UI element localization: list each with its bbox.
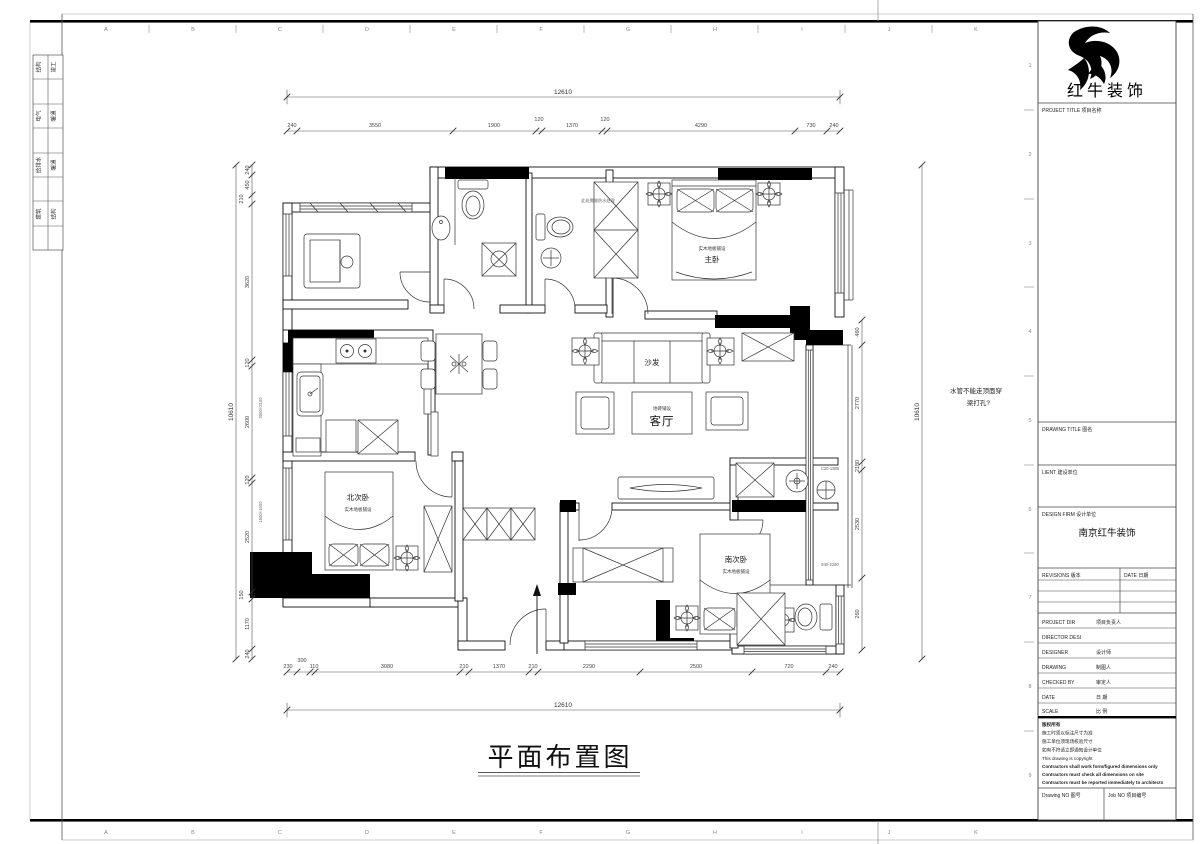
wardrobe — [424, 506, 452, 572]
dim: 3550 — [369, 123, 381, 129]
side-table — [576, 392, 614, 434]
grid-letter: B — [191, 830, 195, 836]
dim: 720 — [784, 664, 793, 670]
title-block: 红牛装饰 PROJECT TITLE 项目名称 DRAWING TITLE 图名… — [1038, 21, 1176, 820]
study-cabinet — [304, 234, 360, 288]
tb-row-en: CHECKED BY — [1042, 680, 1075, 686]
wardrobe — [573, 548, 673, 582]
window — [806, 350, 813, 580]
dim: 210 — [528, 664, 537, 670]
dim: 120 — [245, 475, 251, 484]
client-label: LIENT 建设单位 — [1042, 469, 1077, 476]
bed — [672, 180, 756, 280]
window — [300, 203, 412, 212]
tb-row-en: DESIGNER — [1042, 650, 1069, 656]
window — [836, 596, 844, 644]
cad-canvas: A B C D E F G H I J K A B C D E F G H I … — [0, 0, 1200, 844]
kitchen-sink — [297, 372, 323, 416]
door-bath2 — [545, 279, 575, 309]
grid-letter: D — [365, 27, 369, 33]
dim: 120 — [245, 358, 251, 367]
dim: 210 — [459, 664, 468, 670]
tb-row-en: DATE — [1042, 695, 1056, 701]
project-title-label: PROJECT TITLE 项目名称 — [1042, 107, 1102, 114]
design-firm-label: DESIGN FIRM 设计单位 — [1042, 511, 1096, 518]
job-no-label: Job NO 项目编号 — [1108, 792, 1146, 799]
tb-row-en: SCALE — [1042, 709, 1059, 715]
pipe-note-line1: 水管不能走顶面穿 — [950, 386, 1002, 395]
dim: 240 — [245, 649, 251, 658]
living-label: 客厅 — [650, 414, 675, 428]
grid-letter: G — [626, 27, 630, 33]
bathroom-1 — [432, 178, 516, 276]
grid-numbers-right: 1 2 3 4 5 6 7 8 9 — [1024, 63, 1034, 779]
toilet — [536, 214, 573, 240]
dim: 240 — [287, 123, 296, 129]
dim: 730 — [806, 123, 815, 129]
master-sub-label: 实木地板铺设 — [699, 245, 726, 252]
washbasin — [541, 248, 561, 268]
toilet — [795, 604, 832, 630]
master-bedroom: 实木地板铺设 主卧 — [594, 180, 782, 280]
date-col-label: DATE 日期 — [1124, 573, 1148, 579]
grid-letter: C — [278, 830, 282, 836]
kitchen — [293, 338, 428, 456]
grid-number: 3 — [1028, 241, 1031, 247]
tv-bench — [618, 477, 714, 499]
washbasin — [786, 470, 808, 492]
dim: 240 — [245, 165, 251, 174]
dim: 460 — [855, 327, 861, 336]
south-sub-label: 实木地板铺设 — [723, 568, 750, 575]
grid-number: 6 — [1028, 507, 1031, 513]
grid-letter: G — [626, 830, 630, 836]
grid-letter: F — [539, 830, 543, 836]
tb-row-cn: 审定人 — [1096, 679, 1111, 686]
dim: 2770 — [855, 397, 861, 409]
dim: 1900 — [488, 123, 500, 129]
tb-row-en: DRAWING — [1042, 665, 1066, 671]
tb-row-en: PROJECT DIR — [1042, 620, 1076, 626]
dim: 150 — [239, 590, 245, 599]
dim: 110 — [310, 664, 319, 670]
brand-name: 红牛装饰 — [1067, 82, 1147, 100]
dim: 300 — [297, 658, 306, 664]
copyright-line: 施工时须以标注尺寸为准 — [1042, 730, 1093, 737]
grid-letter: D — [365, 830, 369, 836]
side-table — [706, 392, 748, 430]
grid-letter: H — [713, 830, 717, 836]
design-firm-name: 南京红牛装饰 — [1078, 527, 1135, 539]
south-label: 南次卧 — [725, 554, 748, 564]
dim: 1170 — [245, 618, 251, 630]
dim-right-total: 10610 — [914, 403, 921, 421]
sofa-label: 沙发 — [645, 357, 660, 367]
signoff-table: 结构 竣工 电气 暖通 给排水 暖通 建筑 结构 — [33, 55, 63, 250]
copyright-line: This drawing is copyright — [1042, 756, 1093, 761]
copyright-line: Contractors must check all dimensions on… — [1042, 772, 1144, 777]
dim: 2600 — [245, 416, 251, 428]
dim: 1370 — [566, 123, 578, 129]
grid-letter: J — [888, 27, 891, 33]
toilet — [458, 180, 488, 219]
grid-number: 7 — [1028, 595, 1031, 601]
waterproof-note: 此处需做防水处理 — [581, 197, 615, 204]
grid-letter: I — [801, 830, 803, 836]
ac-cabinet — [742, 333, 794, 361]
grid-number: 8 — [1028, 684, 1031, 690]
grid-letters-top: A B C D E F G H I J K — [104, 25, 978, 33]
door-south-bedroom — [579, 507, 612, 541]
door-master — [612, 278, 648, 314]
window — [585, 641, 697, 650]
pipe-note-line2: 梁打孔? — [967, 398, 991, 407]
tb-row-cn: 项目负责人 — [1096, 619, 1121, 626]
signoff-label: 暖通 — [50, 110, 58, 122]
north-sub-label: 实木地板铺设 — [345, 506, 372, 513]
dim-left-total: 10610 — [228, 403, 235, 421]
door-entry — [510, 609, 546, 645]
shower — [737, 593, 785, 645]
dim: 210 — [239, 194, 245, 203]
grid-number: 2 — [1028, 152, 1031, 158]
door-bath1 — [444, 279, 474, 309]
tb-row-cn: 比 例 — [1096, 708, 1107, 715]
dim: 3620 — [245, 276, 251, 288]
grid-letter: C — [278, 27, 282, 33]
copyright-line: 施工单位须现场校验尺寸 — [1042, 738, 1093, 745]
grid-letter: J — [888, 830, 891, 836]
north-bedroom: 北次卧 实木地板铺设 — [325, 472, 452, 572]
floor-plan: 沙发 地砖铺设 客厅 实木地板铺设 主卧 — [228, 89, 1002, 717]
bed — [325, 472, 393, 570]
window — [283, 372, 292, 436]
grid-letter: A — [104, 830, 108, 836]
grid-letter: E — [452, 27, 456, 33]
living-sub-label: 地砖铺设 — [653, 405, 671, 412]
hall-cabinets — [463, 508, 535, 540]
grid-letter: H — [713, 27, 717, 33]
door-study — [400, 272, 430, 302]
dim: 2180 — [855, 460, 861, 472]
washing-machine — [482, 243, 516, 276]
window-tag: C20-1985 — [821, 466, 840, 471]
grid-letter: K — [974, 830, 978, 836]
dim: 240 — [829, 123, 838, 129]
washbasin — [432, 216, 450, 240]
grid-letter: K — [974, 27, 978, 33]
signoff-label: 电气 — [35, 110, 43, 122]
signoff-label: 结构 — [50, 208, 58, 220]
dim: 3080 — [381, 664, 393, 670]
tb-row-cn: 日 期 — [1096, 695, 1107, 701]
copyright-line: 版权所有 — [1042, 721, 1061, 728]
dim: 260 — [855, 609, 861, 618]
drawing-title-text: 平面布置图 — [487, 742, 632, 772]
dim-top-total: 12610 — [554, 89, 572, 96]
signoff-label: 暖通 — [50, 159, 58, 171]
door-north-bedroom — [416, 461, 452, 497]
copyright-line: Contractors must be reported immediately… — [1042, 780, 1164, 785]
revisions-label: REVISIONS 版本 — [1042, 572, 1081, 579]
copyright-line: 如有不符请立即通知设计单位 — [1042, 747, 1102, 754]
entry-arrow — [533, 584, 541, 654]
grid-letter: E — [452, 830, 456, 836]
drawing-no-label: Drawing NO 图号 — [1042, 793, 1081, 799]
window-tag: 940-2290 — [821, 562, 839, 567]
grid-number: 9 — [1028, 773, 1031, 779]
dim: 450 — [245, 180, 251, 189]
signoff-label: 建筑 — [35, 208, 43, 220]
wardrobe — [594, 182, 638, 278]
dim: 2520 — [245, 531, 251, 543]
dim: 2290 — [583, 664, 595, 670]
signoff-label: 竣工 — [50, 61, 58, 73]
window-tag: 2000×2100 — [258, 397, 263, 419]
grid-number: 4 — [1028, 329, 1031, 335]
signoff-label: 结构 — [35, 61, 43, 73]
signoff-label: 给排水 — [35, 156, 43, 173]
master-label: 主卧 — [705, 254, 720, 264]
grid-letter: B — [191, 27, 195, 33]
dim: 2500 — [690, 664, 702, 670]
dim: 240 — [828, 664, 837, 670]
window — [283, 468, 292, 540]
balcony-basin — [817, 481, 835, 499]
grid-letter: A — [104, 27, 108, 33]
grid-letter: I — [801, 27, 803, 33]
drawing-sheet: A B C D E F G H I J K A B C D E F G H I … — [0, 0, 1200, 844]
window — [283, 214, 292, 276]
drawing-title-label: DRAWING TITLE 图名 — [1042, 426, 1092, 433]
window-tag: 1500×1500 — [258, 501, 263, 523]
grid-letter: F — [539, 27, 543, 33]
dim: 4290 — [695, 123, 707, 129]
grid-number: 5 — [1028, 418, 1031, 424]
tb-row-cn: 设计师 — [1096, 649, 1111, 656]
window — [744, 646, 826, 654]
dim: 2530 — [855, 518, 861, 530]
north-label: 北次卧 — [347, 492, 370, 502]
drawing-title: 平面布置图 — [478, 742, 640, 776]
fridge — [358, 420, 398, 454]
stove — [336, 339, 376, 363]
dim: 120 — [534, 117, 543, 123]
tb-row-en: DIRECTOR DESI — [1042, 635, 1081, 641]
dim: 120 — [600, 117, 609, 123]
window — [835, 193, 844, 293]
dim: 230 — [283, 664, 292, 670]
tb-row-cn: 制图人 — [1096, 664, 1111, 671]
vanity — [736, 463, 774, 497]
copyright-line: Contractors shall work form/figured dime… — [1042, 764, 1158, 769]
grid-letters-bottom: A B C D E F G H I J K — [104, 830, 978, 836]
dim-bottom-total: 12610 — [554, 702, 572, 709]
dim: 1370 — [493, 664, 505, 670]
grid-number: 1 — [1028, 63, 1031, 69]
